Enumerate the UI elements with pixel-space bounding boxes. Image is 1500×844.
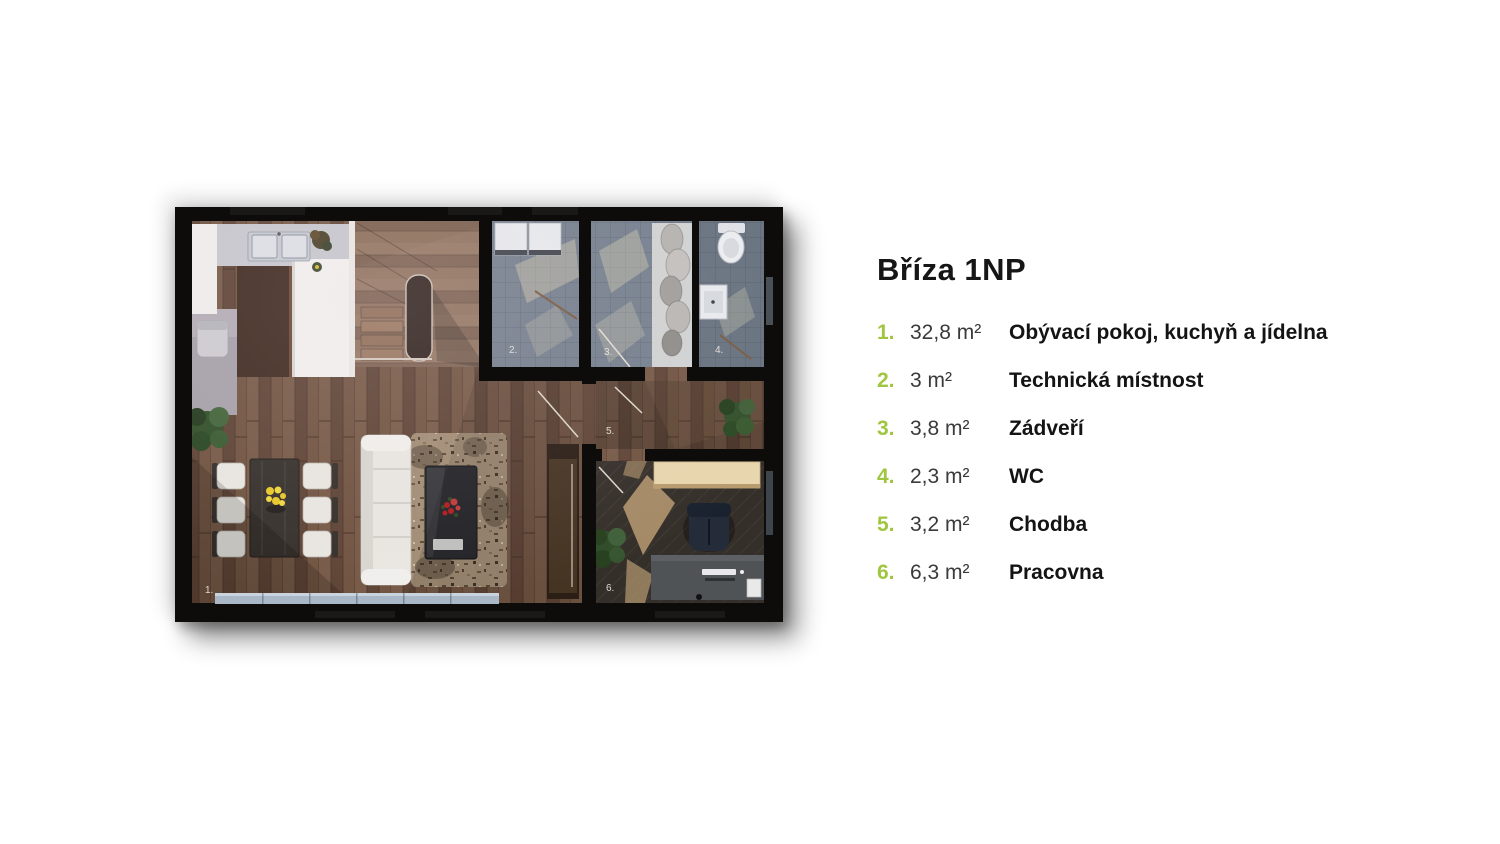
floor-plan-svg: 1. 2. 3. 4. 5. 6. xyxy=(175,207,783,622)
room-name: Zádveří xyxy=(1009,418,1084,439)
plan-label-office: 6. xyxy=(606,583,614,594)
plan-label-hallway: 5. xyxy=(606,426,614,437)
plan-label-technical: 2. xyxy=(509,345,517,356)
legend-row: 2. 3 m² Technická místnost xyxy=(877,370,1437,391)
room-area: 3,8 m² xyxy=(910,418,1009,439)
plan-label-wc: 4. xyxy=(715,345,723,356)
room-name: Chodba xyxy=(1009,514,1087,535)
window-right-office xyxy=(766,471,773,535)
legend-row: 6. 6,3 m² Pracovna xyxy=(877,562,1437,583)
window-right-wc xyxy=(766,277,773,325)
room-number: 5. xyxy=(877,514,910,535)
floor-plan-image: 1. 2. 3. 4. 5. 6. xyxy=(175,207,783,622)
plan-label-living: 1. xyxy=(205,585,213,596)
room-name: Obývací pokoj, kuchyň a jídelna xyxy=(1009,322,1328,343)
room-area: 3,2 m² xyxy=(910,514,1009,535)
room-area: 6,3 m² xyxy=(910,562,1009,583)
room-area: 2,3 m² xyxy=(910,466,1009,487)
room-name: Pracovna xyxy=(1009,562,1104,583)
room-number: 2. xyxy=(877,370,910,391)
legend-row: 5. 3,2 m² Chodba xyxy=(877,514,1437,535)
room-number: 3. xyxy=(877,418,910,439)
room-area: 3 m² xyxy=(910,370,1009,391)
plan-label-entry: 3. xyxy=(604,347,612,358)
room-name: WC xyxy=(1009,466,1044,487)
living-window xyxy=(215,593,499,604)
legend-row: 4. 2,3 m² WC xyxy=(877,466,1437,487)
page-title: Bříza 1NP xyxy=(877,252,1437,288)
room-number: 1. xyxy=(877,322,910,343)
legend-row: 1. 32,8 m² Obývací pokoj, kuchyň a jídel… xyxy=(877,322,1437,343)
room-number: 6. xyxy=(877,562,910,583)
room-number: 4. xyxy=(877,466,910,487)
legend: Bříza 1NP 1. 32,8 m² Obývací pokoj, kuch… xyxy=(877,252,1437,583)
room-name: Technická místnost xyxy=(1009,370,1204,391)
legend-row: 3. 3,8 m² Zádveří xyxy=(877,418,1437,439)
room-area: 32,8 m² xyxy=(910,322,1009,343)
legend-rows: 1. 32,8 m² Obývací pokoj, kuchyň a jídel… xyxy=(877,322,1437,583)
